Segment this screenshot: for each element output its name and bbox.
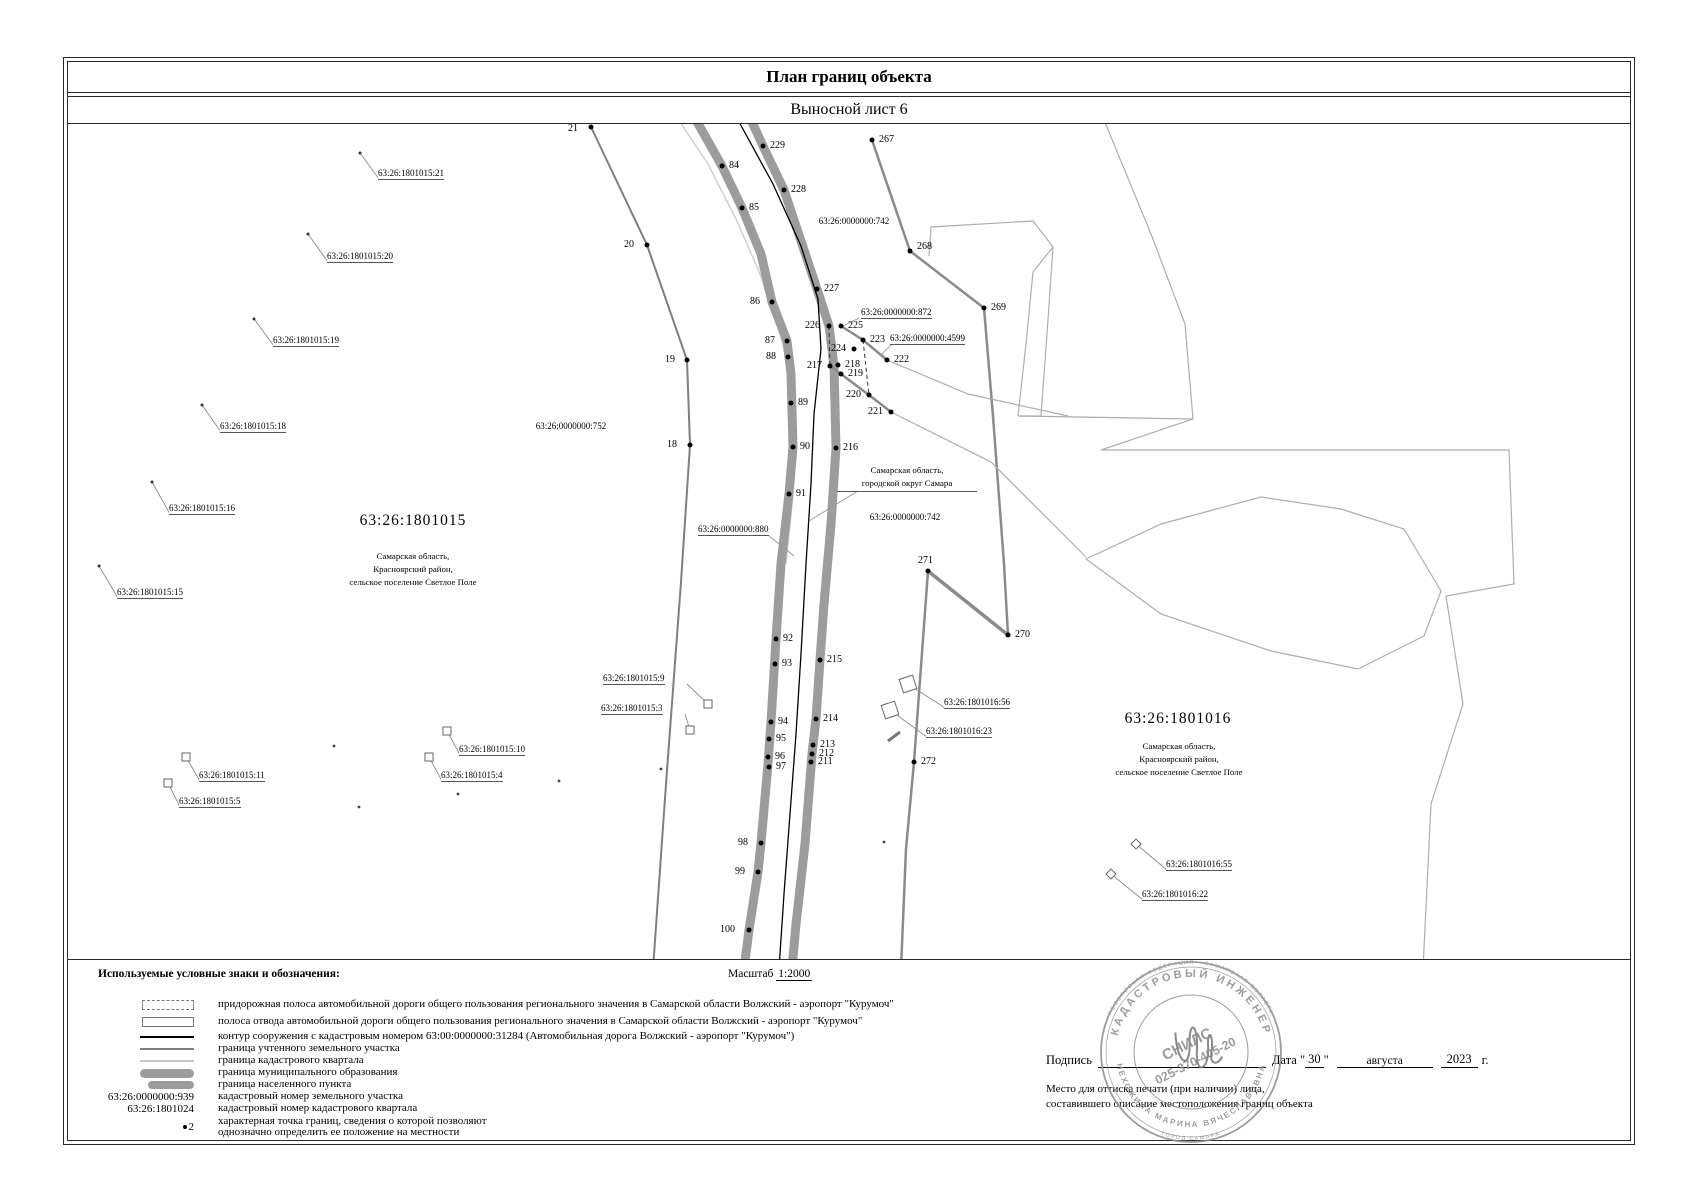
legend-text: кадастровый номер земельного участка [218,1091,403,1103]
parcel-label: 63:26:1801015:18 [220,421,286,433]
map-point [810,752,815,757]
area-label-kn: 63:26:0000000:742 [794,216,914,226]
parcel-label: 63:26:1801015:3 [601,703,663,715]
map-point-label: 270 [1015,630,1030,640]
parcel-label: 63:26:1801015:21 [378,168,444,180]
legend-text: кадастровый номер кадастрового квартала [218,1103,417,1115]
legend-row: граница муниципального образования [98,1067,894,1079]
legend-row: придорожная полоса автомобильной дороги … [98,996,894,1013]
parcel-label: 63:26:1801016:55 [1166,859,1232,871]
line-light-symbol [140,1060,194,1062]
map-point-label: 228 [791,185,806,195]
map-point [756,870,761,875]
parcel-label: 63:26:1801015:9 [603,673,665,685]
legend-symbol [98,1036,206,1038]
map-point-label: 98 [738,838,748,848]
rect-dashed-symbol [142,1000,194,1010]
map-point-label: 20 [624,240,634,250]
legend-text: граница кадастрового квартала [218,1055,364,1067]
map-point-label: 221 [868,407,883,417]
map-point [908,249,913,254]
parcel-marker-sqr [881,701,900,720]
legend-symbol [98,1060,206,1062]
parcel-label: 63:26:1801015:16 [169,503,235,515]
map-point [889,410,894,415]
area-label-addr-u: Самарская область, городской округ Самар… [837,464,977,492]
map-point [926,569,931,574]
map-point-label: 268 [917,242,932,252]
scale-word: Масштаб [728,968,773,980]
line-black-symbol [140,1036,194,1038]
legend-text: контур сооружения с кадастровым номером … [218,1031,794,1043]
legend-row: полоса отвода автомобильной дороги общег… [98,1013,894,1030]
legend-symbol [98,1048,206,1050]
map-point-label: 95 [776,734,786,744]
map-point-label: 215 [827,655,842,665]
parcel-marker-dot [253,318,256,321]
area-label-kn-u: 63:26:0000000:880 [698,524,769,536]
legend-symbol: 2 [98,1121,206,1133]
map-point [815,287,820,292]
map-point-label: 85 [749,203,759,213]
sheet-frame: План границ объекта Выносной лист 6 [63,57,1635,1145]
parcel-marker-sq [443,727,452,736]
map-point [773,662,778,667]
area-label-kn-u: 63:26:0000000:872 [861,307,932,319]
map-point [785,339,790,344]
map-canvas: 2120191884858687888990919293949596979899… [68,124,1630,959]
map-point-label: 99 [735,867,745,877]
legend-row: 63:26:1801024кадастровый номер кадастров… [98,1103,894,1115]
band-wide-symbol [140,1069,194,1078]
legend-text: граница муниципального образования [218,1067,397,1079]
map-point [767,737,772,742]
map-point-label: 92 [783,634,793,644]
map-point [912,760,917,765]
map-point-label: 269 [991,303,1006,313]
parcel-label: 63:26:1801016:56 [944,697,1010,709]
map-point [885,358,890,363]
quote-close: " [1324,1053,1329,1068]
cadastral-plan-page: { "title": "План границ объекта", "subti… [0,0,1697,1200]
parcel-marker-sq [704,700,713,709]
map-point [818,658,823,663]
parcel-marker-dot [151,481,154,484]
stamp-inner-circle [1134,995,1248,1109]
area-label-kn: 63:26:0000000:752 [511,421,631,431]
map-point-label: 229 [770,141,785,151]
legend-row: контур сооружения с кадастровым номером … [98,1030,894,1043]
legend-rows: придорожная полоса автомобильной дороги … [98,996,894,1139]
legend-row: 2характерная точка границ, сведения о ко… [98,1115,894,1139]
map-point [720,164,725,169]
map-point [809,760,814,765]
parcel-marker-dia [1105,868,1116,879]
map-point [839,324,844,329]
stamp-seal: КАДАСТРОВЫЙ ИНЖЕНЕР НЕХОЖИНА МАРИНА ВЯЧЕ… [1091,952,1291,1152]
map-point-label: 100 [720,925,735,935]
map-point-label: 19 [665,355,675,365]
scale-label: Масштаб 1:2000 [728,968,812,980]
map-point-label: 91 [796,489,806,499]
map-point [786,355,791,360]
subtitle-row: Выносной лист 6 [68,97,1630,124]
legend-symbol: 63:26:1801024 [98,1103,206,1115]
map-point [740,206,745,211]
map-point [834,446,839,451]
parcel-label: 63:26:1801015:20 [327,251,393,263]
map-point [789,401,794,406]
map-point [782,188,787,193]
parcel-marker-dia [1130,838,1141,849]
parcel-label: 63:26:1801015:11 [199,770,265,782]
map-point-label: 226 [805,321,820,331]
map-point [645,243,650,248]
band-narrow-symbol [148,1081,194,1089]
map-point [791,445,796,450]
stamp-outer-bottom-text: ГОРОД САМАРА [1161,1131,1222,1142]
map-point [766,755,771,760]
legend-row: граница населенного пункта [98,1079,894,1091]
map-labels-layer: 2120191884858687888990919293949596979899… [68,124,1630,959]
map-point [761,144,766,149]
map-point [861,338,866,343]
map-point-label: 267 [879,135,894,145]
map-point-label: 94 [778,717,788,727]
map-point [867,393,872,398]
legend-text: придорожная полоса автомобильной дороги … [218,999,894,1011]
parcel-marker-sq [182,753,191,762]
map-point-label: 87 [765,336,775,346]
area-label-kn-u: 63:26:0000000:4599 [890,333,965,345]
stamp-center-text: СНИЛС 025-370-405-20 [1144,1017,1239,1088]
map-point-label: 271 [918,556,933,566]
map-point [811,743,816,748]
map-point-label: 225 [848,321,863,331]
area-label-addr: Самарская область, Красноярский район, с… [1104,740,1254,778]
map-point [769,720,774,725]
map-point [1006,633,1011,638]
parcel-label: 63:26:1801016:23 [926,726,992,738]
parcel-marker-dot [359,152,362,155]
line-gray-symbol [140,1048,194,1050]
parcel-marker-dot [307,233,310,236]
map-point-label: 223 [870,335,885,345]
map-point-label: 216 [843,443,858,453]
legend-row: 63:26:0000000:939кадастровый номер земел… [98,1091,894,1103]
area-label-kn: 63:26:0000000:742 [845,512,965,522]
map-point [685,358,690,363]
area-label-addr: Самарская область, Красноярский район, с… [338,550,488,588]
map-point [836,363,841,368]
map-point-label: 220 [846,390,861,400]
legend-text: граница населенного пункта [218,1079,351,1091]
legend-symbol: 63:26:0000000:939 [98,1091,206,1103]
date-year: 2023 [1441,1052,1478,1068]
map-point [839,372,844,377]
map-point-label: 88 [766,352,776,362]
legend-symbol [98,1000,206,1010]
parcel-label: 63:26:1801015:19 [273,335,339,347]
parcel-label: 63:26:1801015:5 [179,796,241,808]
map-point-label: 21 [568,124,578,134]
quote-open: " [1297,1053,1305,1068]
map-point [814,717,819,722]
title-row: План границ объекта [68,62,1630,93]
sheet-inner-frame: План границ объекта Выносной лист 6 [67,61,1631,1141]
parcel-marker-dot [98,565,101,568]
map-point-label: 219 [848,369,863,379]
map-point-label: 214 [823,714,838,724]
stamp-ring-top-text: КАДАСТРОВЫЙ ИНЖЕНЕР [1109,967,1273,1037]
scale-value: 1:2000 [776,968,812,981]
map-point-label: 211 [818,757,833,767]
map-point [747,928,752,933]
legend-symbol [98,1017,206,1027]
map-point-label: 86 [750,297,760,307]
legend-text: граница учтенного земельного участка [218,1043,400,1055]
map-point [774,637,779,642]
map-point-label: 18 [667,440,677,450]
map-point-label: 93 [782,659,792,669]
page-title: План границ объекта [766,67,932,87]
map-point [770,300,775,305]
map-point-label: 222 [894,355,909,365]
signature-label: Подпись [1046,1053,1092,1068]
parcel-label: 63:26:1801015:15 [117,587,183,599]
area-label-quarter: 63:26:1801016 [1113,710,1243,728]
parcel-marker-sq [164,779,173,788]
rect-solid-symbol [142,1017,194,1027]
legend-text: полоса отвода автомобильной дороги общег… [218,1016,862,1028]
parcel-marker-dot [201,404,204,407]
parcel-label: 63:26:1801015:4 [441,770,503,782]
legend-text: характерная точка границ, сведения о кот… [218,1116,487,1139]
legend-row: граница кадастрового квартала [98,1055,894,1067]
map-point-label: 227 [824,284,839,294]
map-point [787,492,792,497]
map-point-label: 217 [807,361,822,371]
map-point [759,841,764,846]
legend-symbol [98,1069,206,1078]
map-point [827,324,832,329]
map-point [688,443,693,448]
map-point [870,138,875,143]
map-point-label: 89 [798,398,808,408]
area-label-quarter: 63:26:1801015 [348,512,478,530]
map-point-label: 272 [921,757,936,767]
legend-header: Используемые условные знаки и обозначени… [98,968,340,980]
sheet-subtitle: Выносной лист 6 [790,101,907,119]
map-point [767,765,772,770]
legend-row: граница учтенного земельного участка [98,1043,894,1055]
parcel-marker-sq [425,753,434,762]
parcel-label: 63:26:1801015:10 [459,744,525,756]
date-month: августа [1337,1055,1433,1068]
map-point [982,306,987,311]
parcel-label: 63:26:1801016:22 [1142,889,1208,901]
map-point [589,125,594,130]
map-point-label: 224 [831,344,846,354]
parcel-marker-sq [686,726,695,735]
map-point-label: 90 [800,442,810,452]
map-point-label: 84 [729,161,739,171]
parcel-marker-sqr [899,675,918,694]
map-point [852,347,857,352]
legend-section: Используемые условные знаки и обозначени… [68,959,1630,1140]
legend-symbol [98,1081,206,1089]
map-point-label: 97 [776,762,786,772]
map-point [828,364,833,369]
date-suffix: г. [1482,1053,1489,1068]
date-day: 30 [1305,1052,1324,1068]
